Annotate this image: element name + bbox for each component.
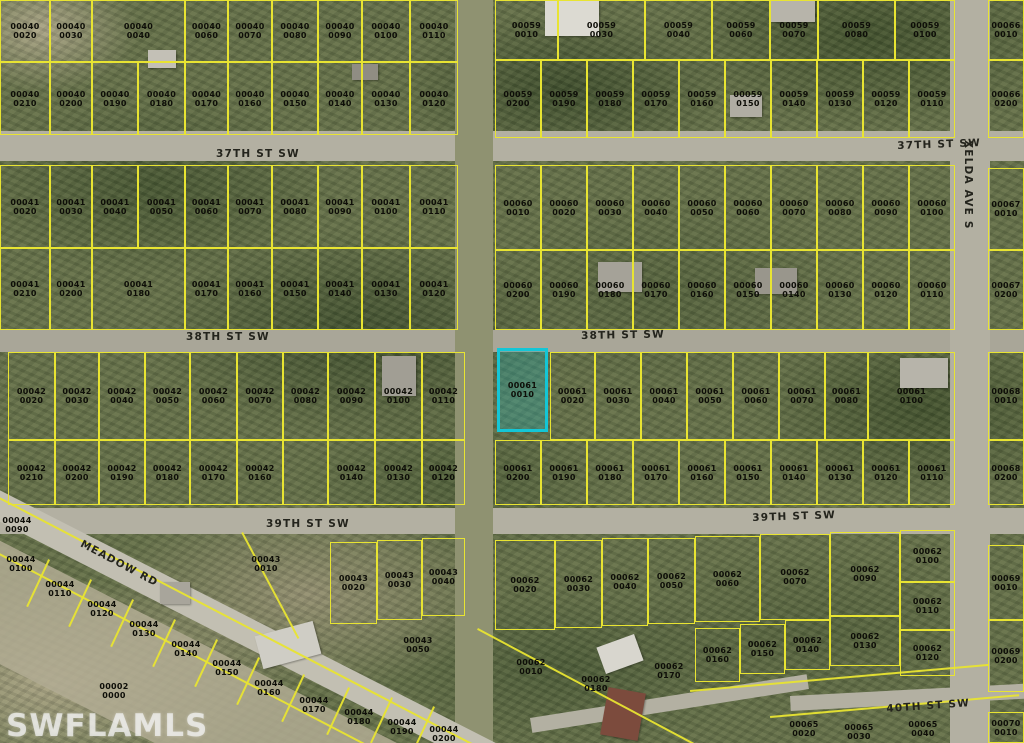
street-label: 38TH ST SW (581, 329, 665, 342)
street-label: 39TH ST SW (752, 509, 836, 524)
parcel-map[interactable]: 00040 002000040 003000040 004000040 0060… (0, 0, 1024, 743)
street-label: XELDA AVE S (962, 140, 974, 230)
watermark: SWFLAMLS (6, 708, 208, 743)
street-label: 40TH ST SW (886, 697, 970, 715)
highlighted-parcel[interactable]: 00061 0010 (497, 348, 548, 432)
street-label: MEADOW RD (78, 538, 160, 589)
street-label: 37TH ST SW (216, 148, 300, 160)
street-label: 39TH ST SW (266, 518, 350, 530)
street-label: 38TH ST SW (186, 331, 270, 343)
highlighted-parcel-label: 00061 0010 (508, 381, 537, 399)
